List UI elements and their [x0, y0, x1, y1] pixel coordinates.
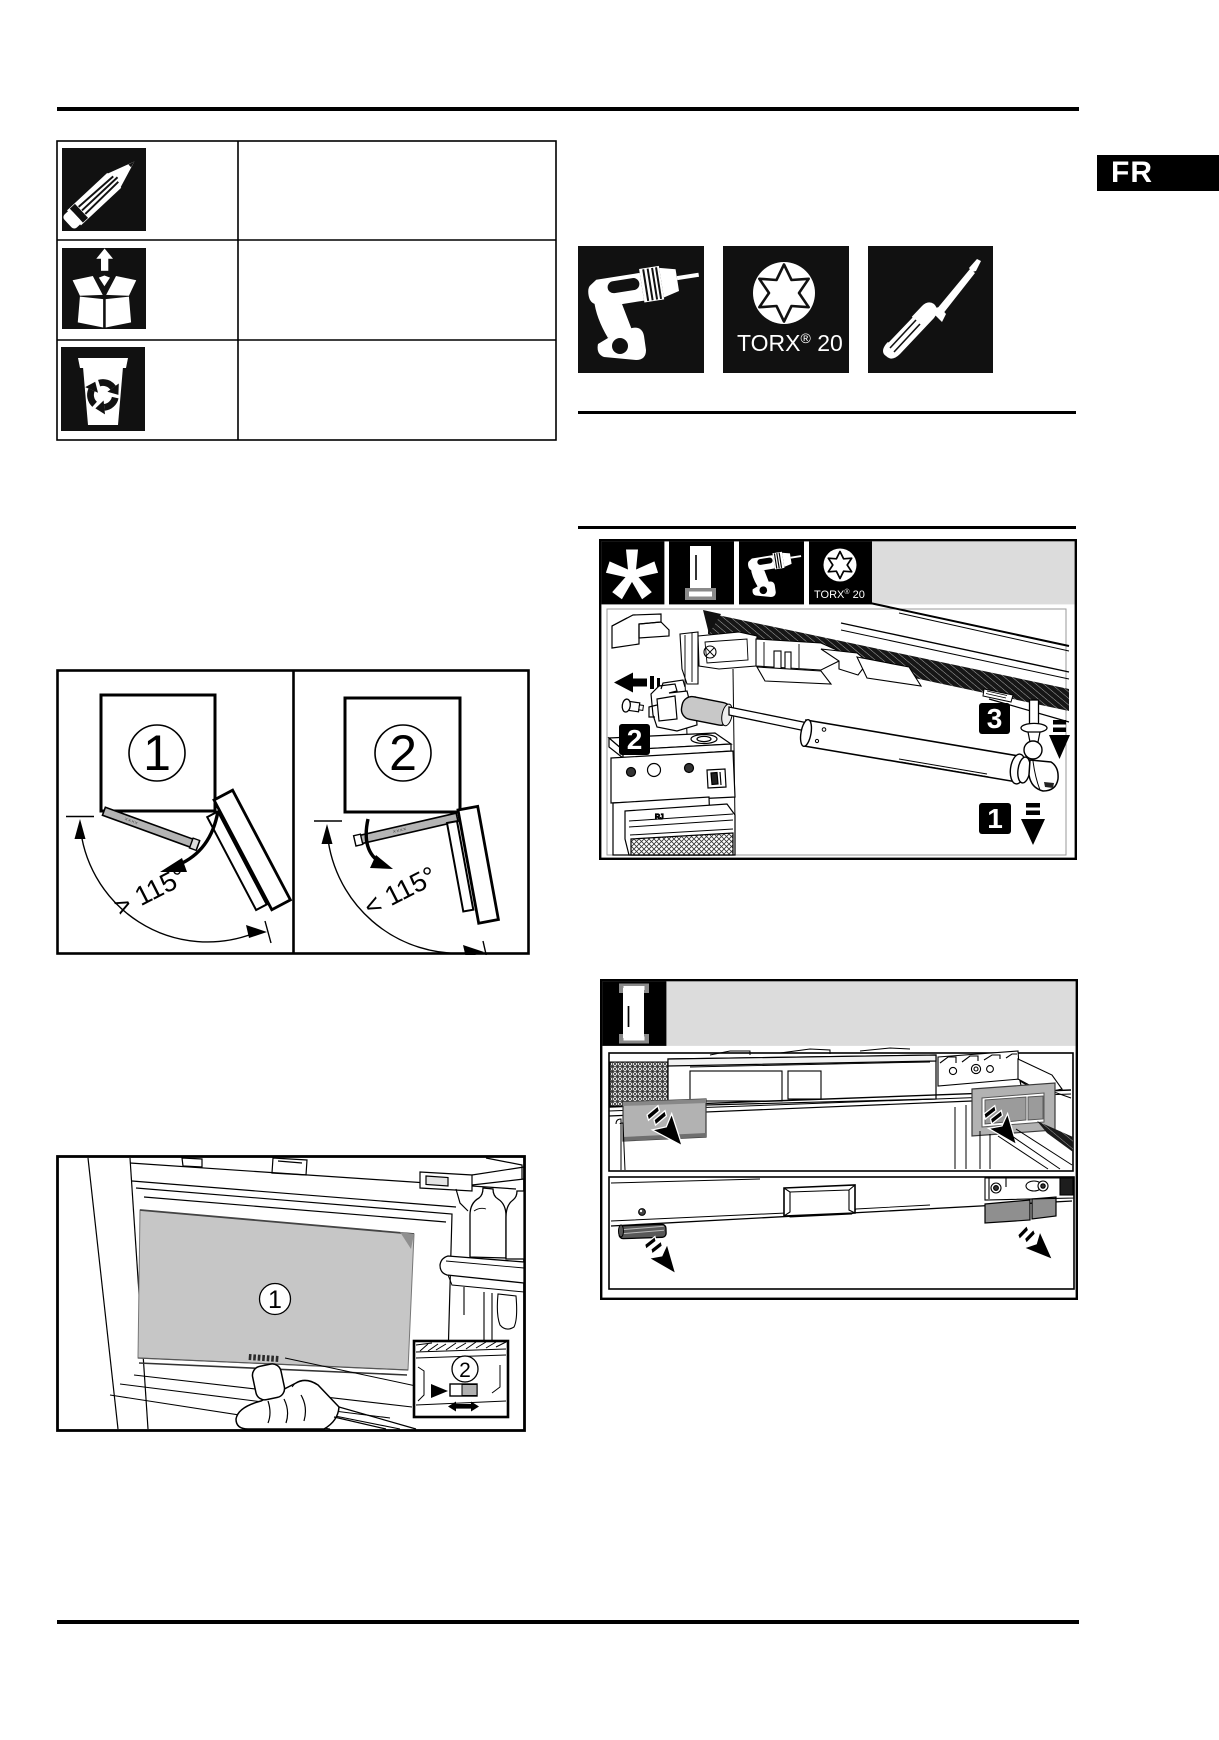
svg-text:2: 2	[627, 724, 643, 755]
svg-text:TORX® 20: TORX® 20	[814, 588, 865, 601]
svg-text:2: 2	[389, 725, 417, 781]
svg-text:1: 1	[143, 725, 171, 781]
svg-text:RJ: RJ	[655, 814, 664, 821]
svg-text:1: 1	[987, 803, 1003, 834]
svg-text:TORX® 20: TORX® 20	[737, 330, 843, 356]
svg-text:3: 3	[987, 703, 1003, 734]
svg-text:1: 1	[268, 1286, 282, 1314]
svg-text:2: 2	[459, 1359, 471, 1382]
